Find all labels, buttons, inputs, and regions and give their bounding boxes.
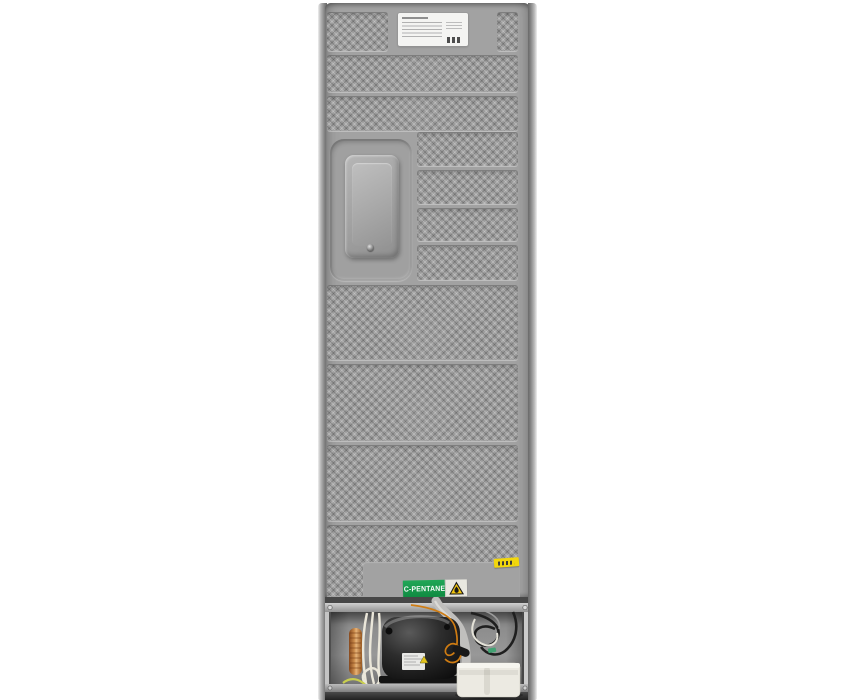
texture-band — [327, 446, 518, 521]
texture-band — [327, 97, 518, 131]
texture-band — [417, 246, 518, 280]
rating-plate — [398, 13, 468, 46]
access-panel-cover-face — [352, 163, 392, 246]
texture-band — [417, 171, 518, 204]
compressor-port — [386, 628, 393, 635]
texture-band — [327, 13, 388, 51]
evaporation-tray — [455, 663, 523, 699]
panel-bottom-gap — [325, 597, 530, 603]
tray-lip — [457, 663, 520, 668]
texture-band — [497, 13, 518, 51]
flange-screw — [523, 605, 527, 609]
refrigerant-label: C-PENTANE — [403, 579, 467, 597]
access-panel-cover — [345, 155, 399, 258]
product-photo: C-PENTANE — [0, 0, 850, 700]
flammable-warning-triangle-icon — [449, 581, 464, 594]
compressor-port — [444, 624, 450, 630]
texture-band — [327, 56, 518, 92]
rating-plate-code — [447, 37, 462, 43]
refrigerant-label-text: C-PENTANE — [403, 584, 445, 594]
inner-rail-left — [325, 612, 329, 684]
cabinet-right-edge — [528, 3, 537, 700]
refrigerant-label-green-field: C-PENTANE — [403, 580, 445, 598]
texture-band — [417, 209, 518, 241]
rating-plate-fine-print — [446, 22, 462, 31]
tray-inner-shade — [459, 670, 518, 675]
inner-rail-right-edge — [522, 612, 524, 684]
service-sticker — [494, 557, 520, 568]
texture-band — [327, 365, 518, 441]
refrigerant-label-icon-field — [445, 579, 467, 596]
refrigerator-back: C-PENTANE — [318, 3, 537, 700]
rating-plate-fine-print — [402, 22, 442, 38]
cover-screw — [367, 244, 374, 251]
rating-plate-heading — [402, 17, 428, 19]
back-panel: C-PENTANE — [325, 3, 530, 597]
texture-band — [327, 286, 518, 360]
service-sticker-code — [498, 560, 514, 565]
flange-screw — [328, 605, 332, 609]
rail-screw — [523, 686, 527, 690]
inner-rail-left-edge — [329, 612, 331, 684]
texture-band — [417, 133, 518, 166]
compressor-compartment — [325, 597, 530, 700]
rail-screw — [328, 686, 332, 690]
